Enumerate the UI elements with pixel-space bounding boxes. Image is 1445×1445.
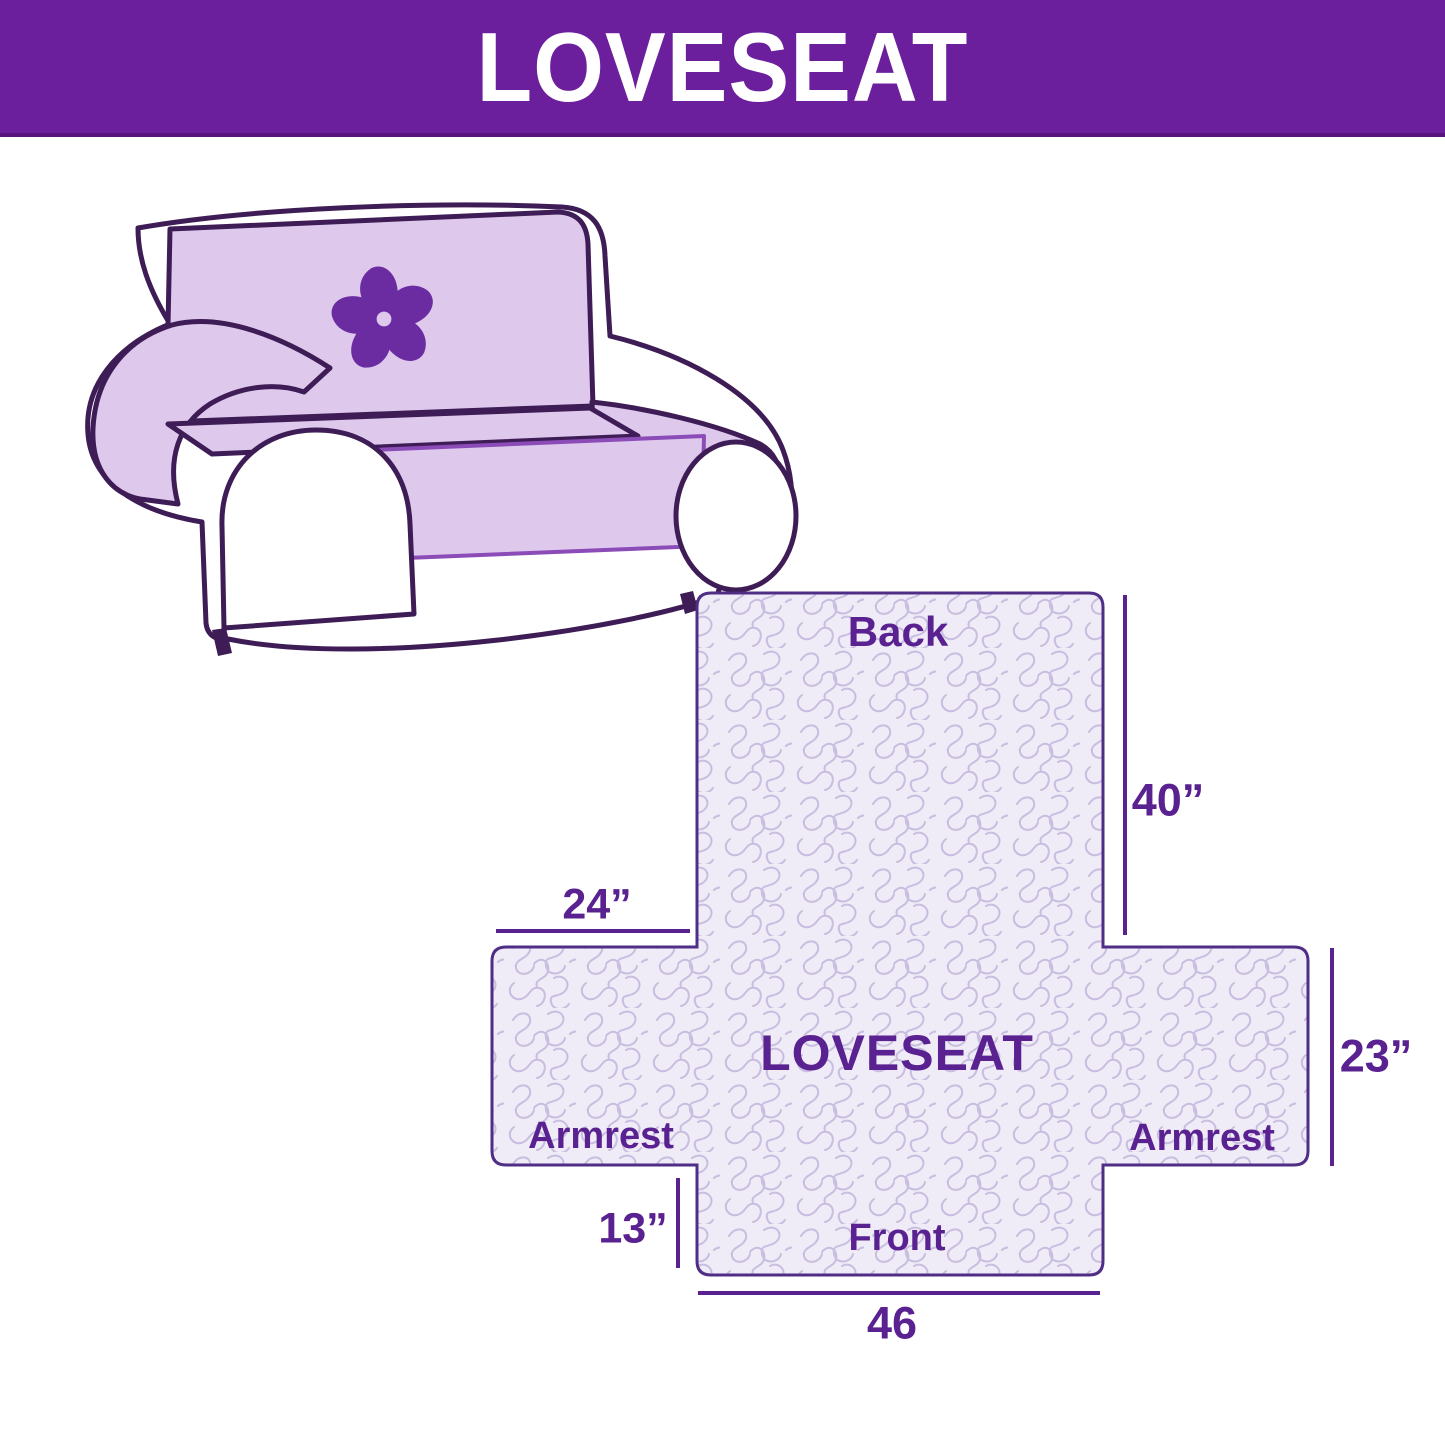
diagram-label-back: Back xyxy=(848,611,948,653)
diagram-label-loveseat: LOVESEAT xyxy=(760,1028,1034,1078)
sofa-left-arm-front xyxy=(222,430,414,628)
page: LOVESEAT xyxy=(0,0,1445,1445)
cover-dimension-diagram xyxy=(492,593,1332,1293)
artwork-layer xyxy=(0,0,1445,1445)
cover-shape-outline xyxy=(492,593,1308,1275)
dimension-value-46: 46 xyxy=(867,1301,917,1346)
loveseat-illustration xyxy=(88,205,796,656)
sofa-right-arm-front xyxy=(676,442,796,590)
diagram-label-armrest-right: Armrest xyxy=(1129,1119,1275,1157)
diagram-label-armrest-left: Armrest xyxy=(528,1117,674,1155)
dimension-value-24: 24” xyxy=(562,884,631,927)
dimension-value-13: 13” xyxy=(598,1208,667,1251)
dimension-value-23: 23” xyxy=(1340,1034,1413,1079)
dimension-value-40: 40” xyxy=(1132,778,1205,823)
diagram-label-front: Front xyxy=(848,1219,945,1257)
